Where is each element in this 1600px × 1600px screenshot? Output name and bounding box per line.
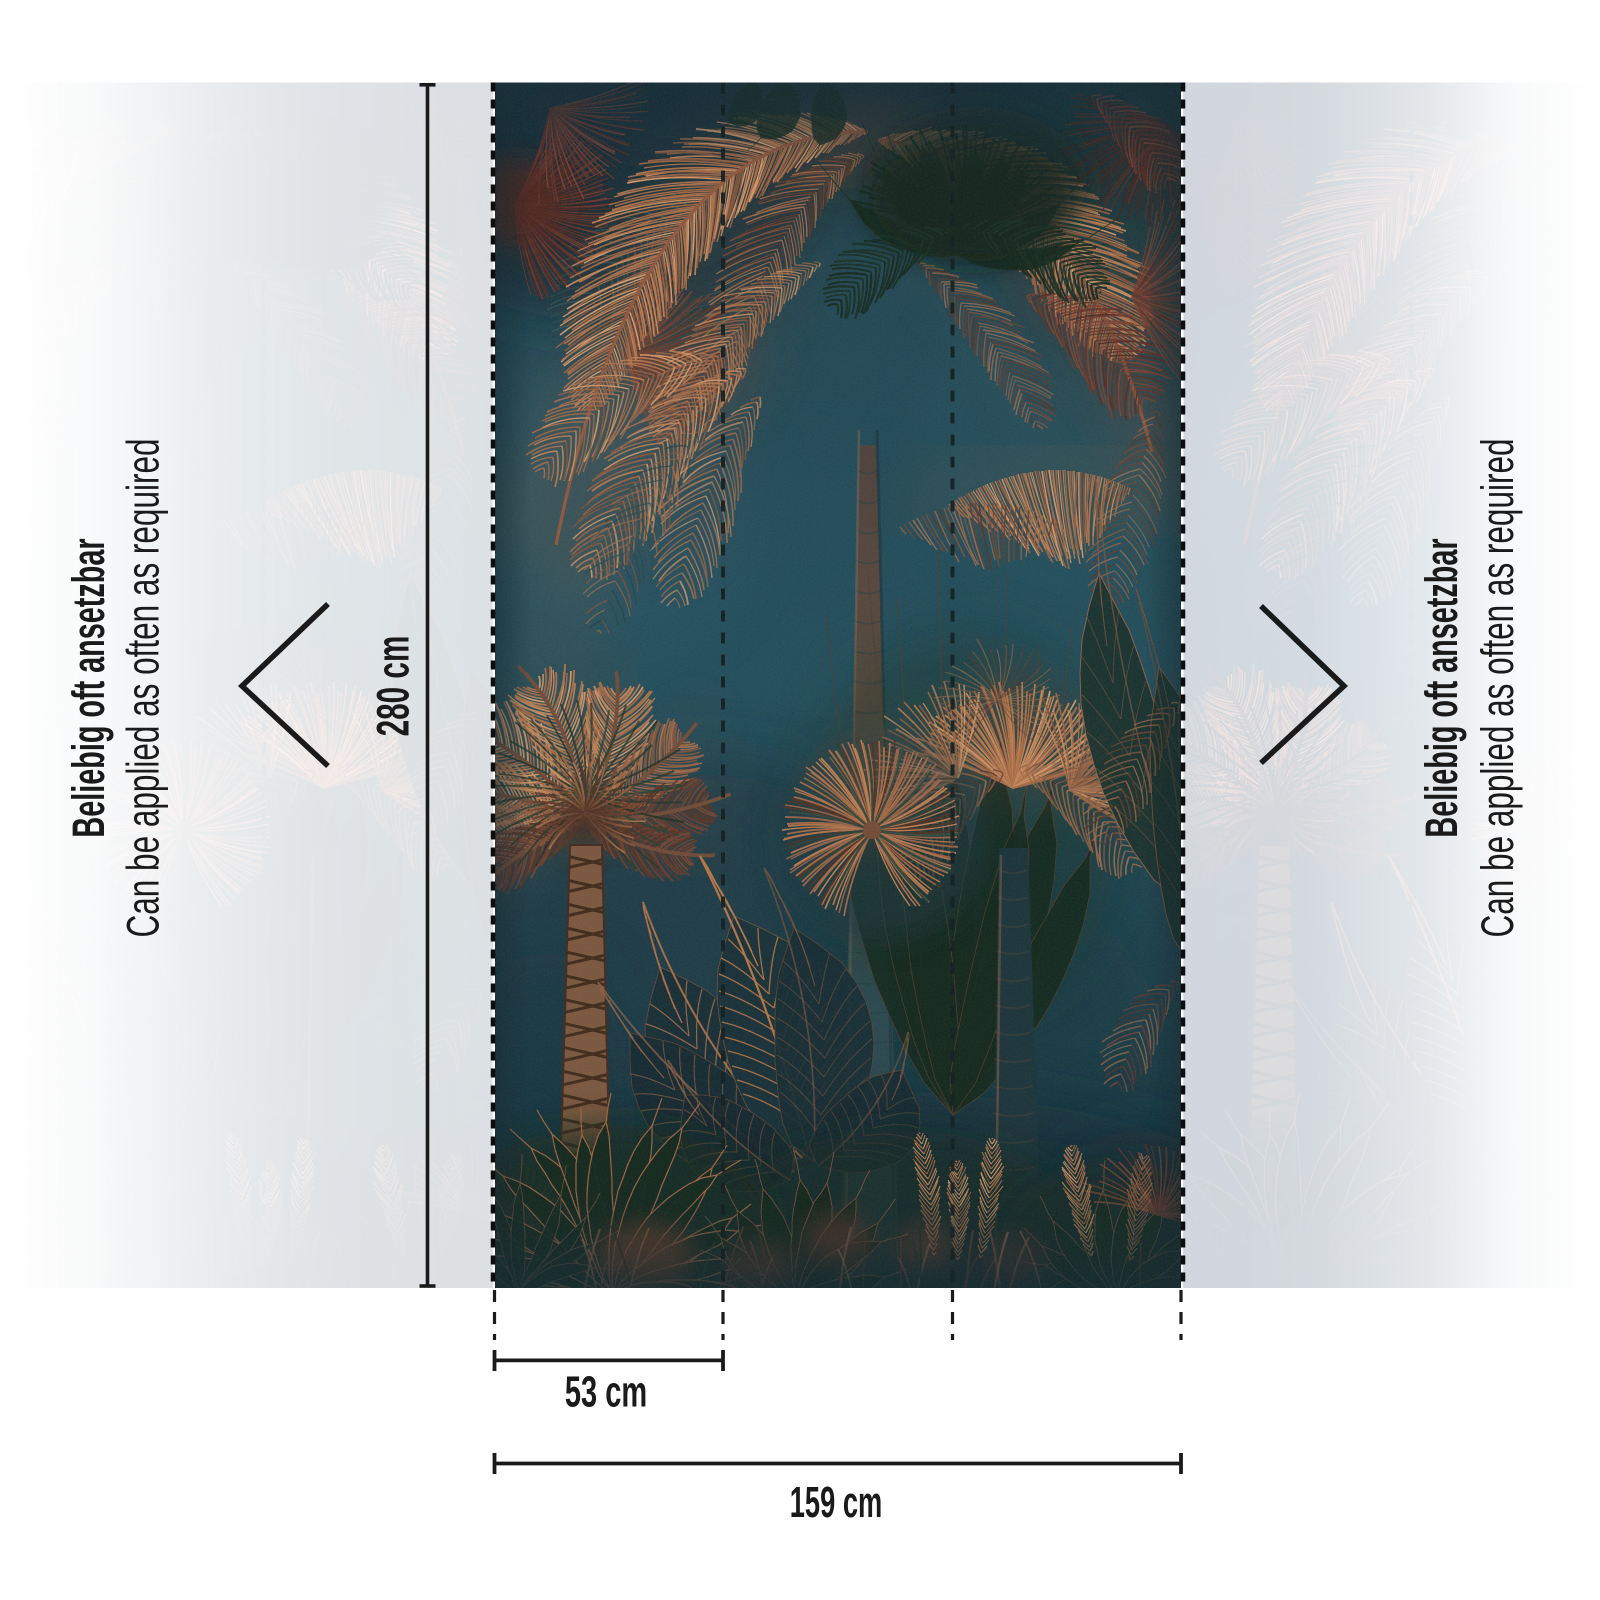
svg-text:Beliebig oft ansetzbar: Beliebig oft ansetzbar — [1418, 538, 1468, 837]
svg-text:280 cm: 280 cm — [368, 636, 419, 737]
svg-text:Can be applied as often as req: Can be applied as often as required — [1474, 439, 1524, 938]
svg-text:Can be applied as often as req: Can be applied as often as required — [119, 439, 169, 938]
svg-text:53 cm: 53 cm — [565, 1366, 647, 1416]
svg-text:Beliebig oft ansetzbar: Beliebig oft ansetzbar — [65, 538, 115, 837]
svg-text:159 cm: 159 cm — [790, 1477, 882, 1526]
